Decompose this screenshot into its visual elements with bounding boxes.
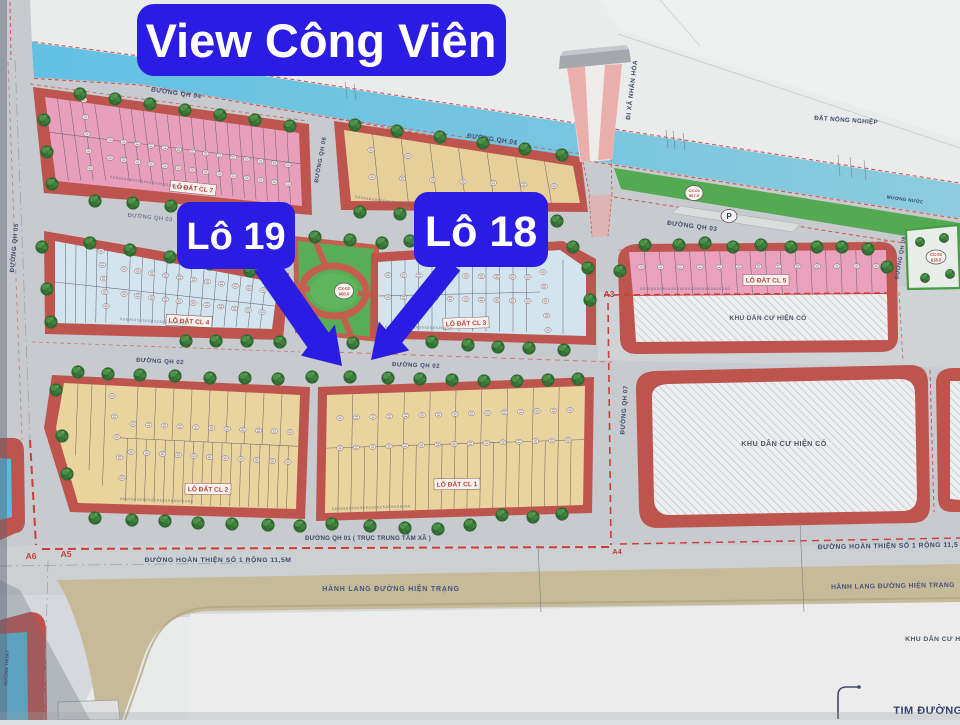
svg-text:View Công Viên: View Công Viên [146,14,497,67]
svg-text:Lô 19: Lô 19 [186,216,285,258]
svg-text:Lô 18: Lô 18 [425,208,537,256]
